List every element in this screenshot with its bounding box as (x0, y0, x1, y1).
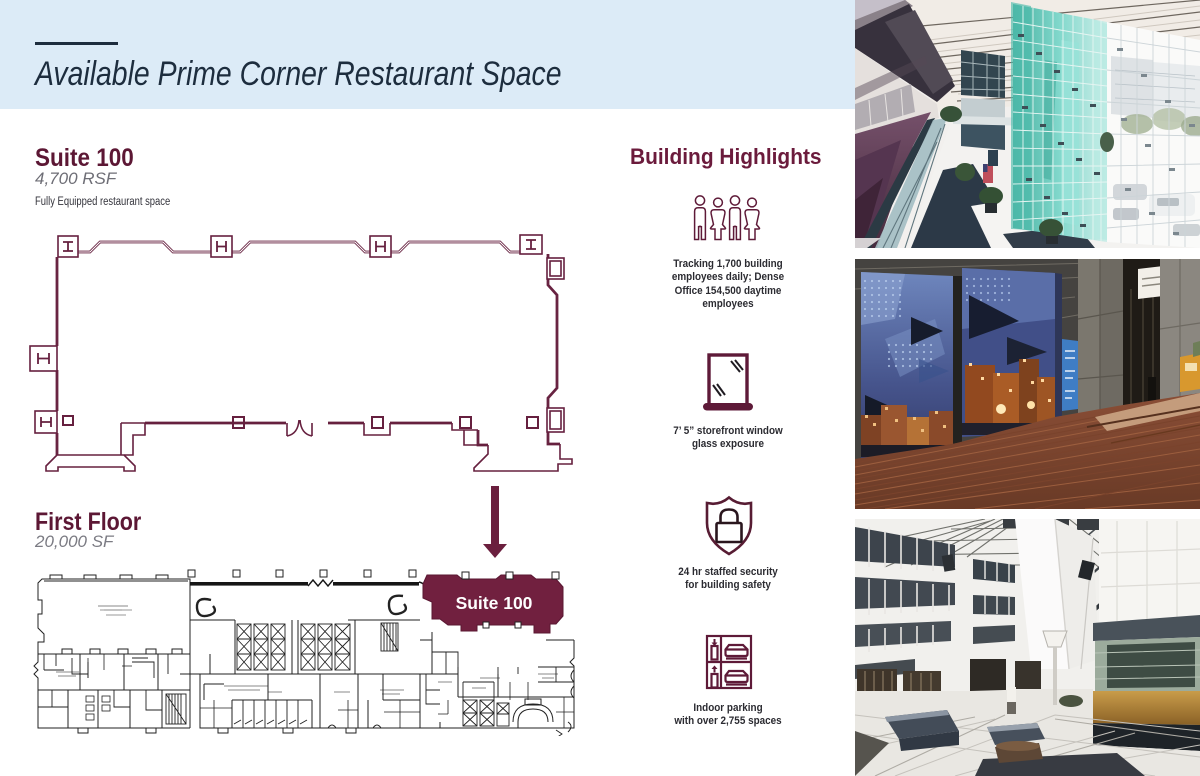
svg-text:Suite 100: Suite 100 (456, 593, 533, 613)
